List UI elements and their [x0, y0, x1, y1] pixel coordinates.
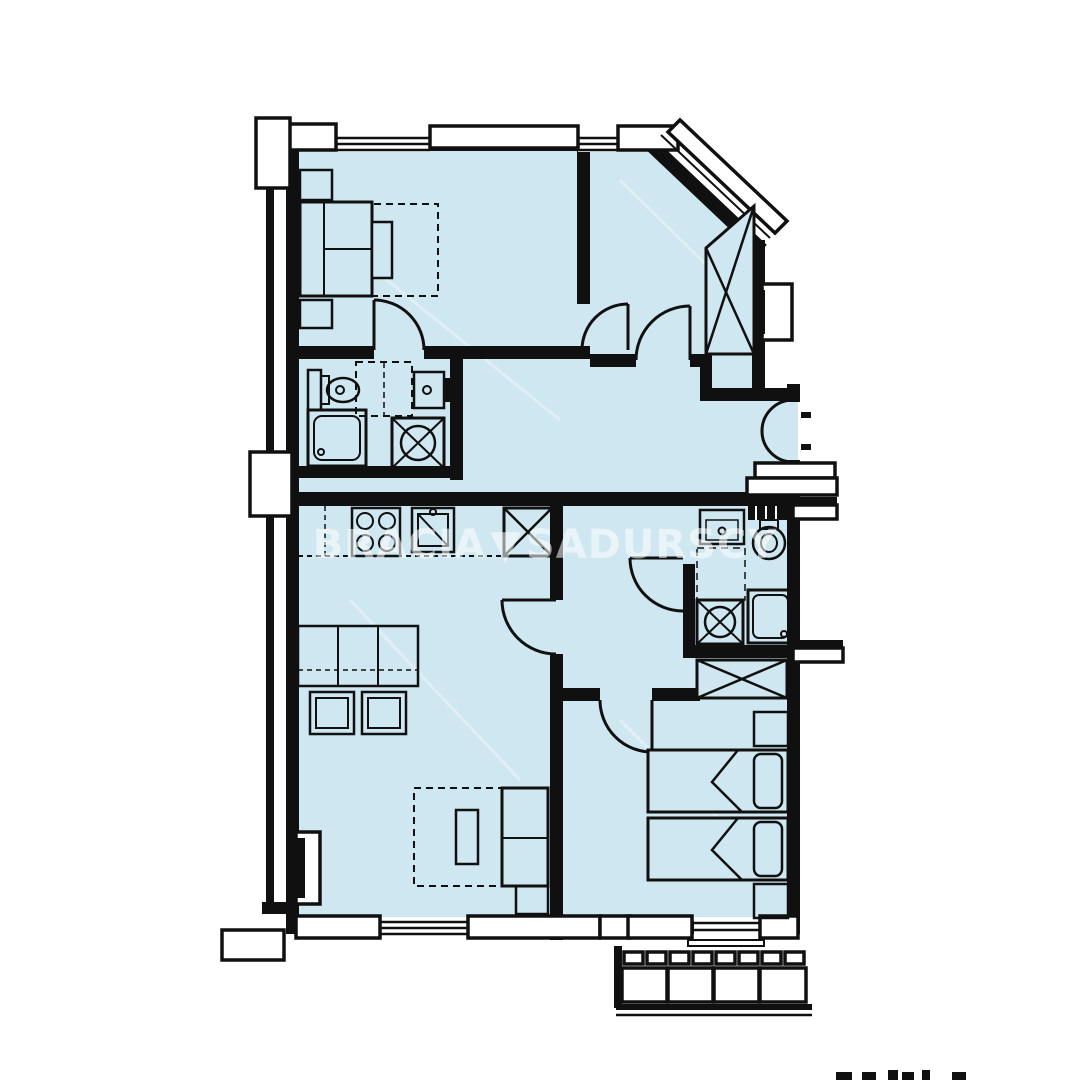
bottom-windows — [296, 916, 798, 946]
stair-step — [747, 478, 837, 495]
single-bed — [648, 818, 788, 880]
floor-plan-drawing: BRACIA▼SADURSCY — [0, 0, 1080, 1080]
watermark: BRACIA▼SADURSCY — [313, 522, 778, 568]
wall-pier — [600, 916, 630, 938]
railing-segment — [693, 952, 712, 964]
wall-bed1-bed2 — [577, 146, 590, 304]
balcony-door-gap — [694, 917, 760, 937]
wall-pier — [430, 126, 578, 148]
letter-top-mark — [902, 1072, 914, 1080]
neighbour-wall — [266, 188, 274, 454]
neighbour-pier — [793, 648, 843, 662]
railing-panel — [760, 968, 806, 1002]
entrance-door-tick — [801, 444, 811, 450]
cropped-text-fragment — [836, 1070, 966, 1080]
wall-kitchen-top — [292, 492, 563, 506]
railing-segment — [716, 952, 735, 964]
wall-room2-bottom-left — [590, 354, 636, 367]
wall-bath2-bottom — [683, 645, 798, 658]
railing-segment — [647, 952, 666, 964]
balcony-edge — [616, 1004, 812, 1010]
letter-top-mark — [952, 1072, 966, 1080]
wall-pier — [468, 916, 600, 938]
radiator-niche — [762, 284, 792, 340]
floor-plan-page: BRACIA▼SADURSCY — [0, 0, 1080, 1080]
railing-panel — [622, 968, 667, 1002]
wall-bed1-bottom-left — [292, 346, 374, 359]
railing-segment — [624, 952, 643, 964]
door-sill — [688, 940, 764, 946]
wall-bath1-right — [450, 346, 463, 480]
wall-bed3-top-right — [652, 688, 700, 701]
neighbour-pier — [256, 118, 290, 188]
neighbour-pier — [793, 505, 837, 519]
watermark-left: BRACIA — [313, 522, 486, 568]
foot-bench — [372, 222, 392, 278]
letter-top-mark — [862, 1072, 876, 1080]
neighbour-wall — [266, 516, 274, 908]
railing-segment — [670, 952, 689, 964]
wall-pier — [628, 916, 692, 938]
wall-bed3-top-left — [563, 688, 600, 701]
toilet-cistern — [748, 506, 788, 520]
railing-segment — [739, 952, 758, 964]
letter-top-mark — [922, 1070, 930, 1080]
wall-pier — [296, 916, 380, 938]
railing-segment — [762, 952, 781, 964]
wall-ext-left — [286, 138, 299, 934]
letter-top-mark — [836, 1072, 852, 1080]
railing-panel — [668, 968, 713, 1002]
entrance-door-tick — [801, 412, 811, 418]
radiator-icon — [296, 838, 305, 898]
wall-bath2-left — [683, 564, 695, 652]
balcony — [614, 946, 812, 1015]
radiator-icon — [756, 290, 765, 334]
wall-living-corridor-lower — [550, 654, 563, 940]
neighbour-walls — [222, 118, 296, 960]
neighbour-pier — [222, 930, 284, 960]
railing-panel — [714, 968, 759, 1002]
watermark-right: SADURSCY — [526, 522, 777, 568]
watermark-logo-icon: ▼ — [490, 522, 522, 568]
letter-top-mark — [888, 1070, 898, 1080]
railing-segment — [785, 952, 804, 964]
wall-pier — [760, 916, 798, 938]
neighbour-pier — [250, 452, 292, 516]
sofa-bench — [456, 810, 478, 864]
neighbour-wall — [262, 902, 296, 914]
single-bed — [648, 750, 788, 812]
wall-bed1-bottom-right — [424, 346, 590, 359]
washbasin-bracket — [444, 378, 452, 402]
wall-room2-jog — [700, 354, 712, 401]
stair-step — [755, 463, 835, 478]
